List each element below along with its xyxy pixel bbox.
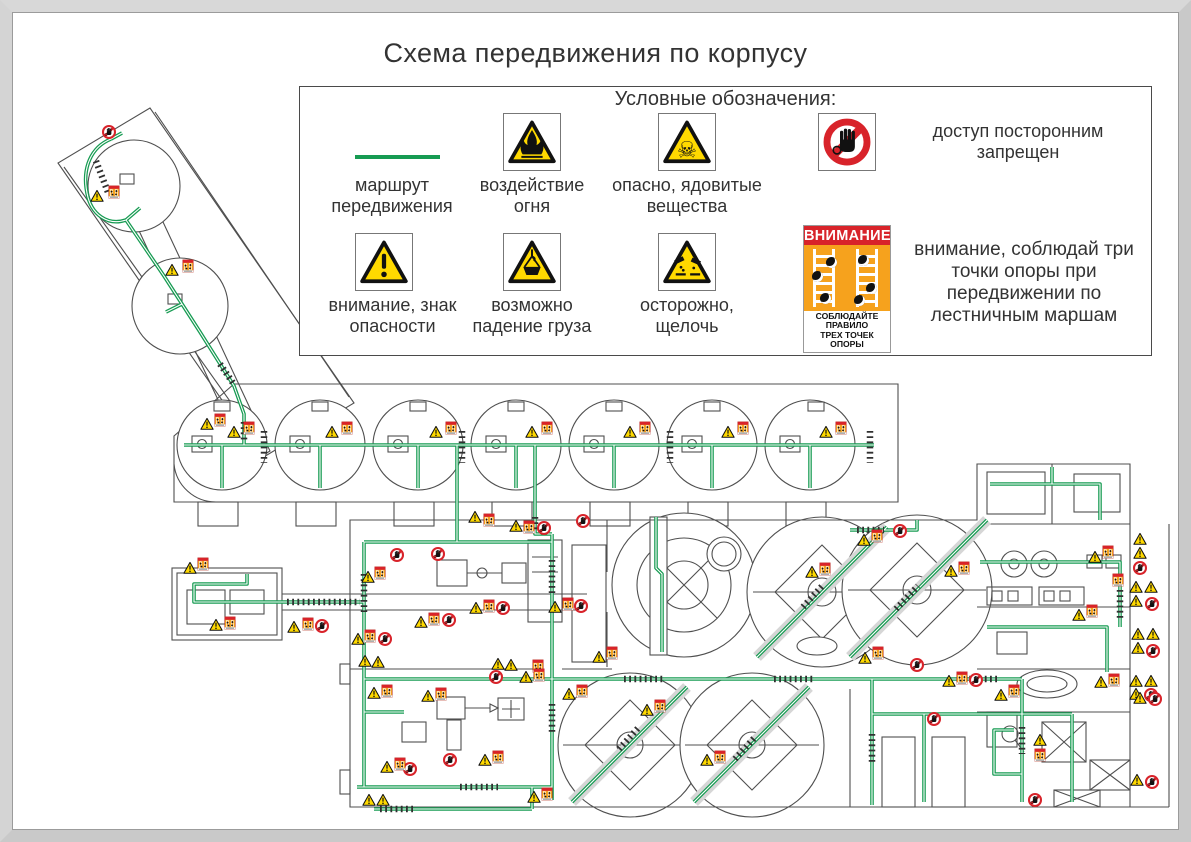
no-access-icon (391, 549, 403, 561)
three-points-notice-icon (303, 618, 313, 630)
no-access-icon (894, 525, 906, 537)
legend-item-load (503, 233, 561, 291)
three-points-notice-icon (484, 514, 494, 526)
no-access-icon (911, 659, 923, 671)
three-points-notice-icon (183, 260, 193, 272)
warning-triangle-icon (563, 688, 575, 699)
three-points-notice-icon (436, 688, 446, 700)
warning-triangle-icon (593, 651, 605, 662)
warning-triangle-icon (470, 602, 482, 613)
safety-scheme-poster: ☠ (0, 0, 1191, 842)
no-access-icon (103, 126, 115, 138)
three-points-notice-icon (524, 521, 534, 533)
route-line-sample (355, 155, 440, 159)
three-points-notice-icon (563, 598, 573, 610)
three-points-notice-icon (375, 567, 385, 579)
three-points-notice-icon (577, 685, 587, 697)
three-points-notice-icon (365, 630, 375, 642)
three-points-notice-icon (1103, 546, 1113, 558)
warning-triangle-icon (377, 794, 389, 805)
three-points-notice-icon (1087, 605, 1097, 617)
legend-box: Условные обозначения: маршрут передвижен… (299, 86, 1152, 356)
legend-label-toxic: опасно, ядовитые вещества (602, 175, 772, 217)
warning-triangle-icon (381, 761, 393, 772)
three-points-notice-icon (655, 700, 665, 712)
three-points-notice-icon (640, 422, 650, 434)
three-points-poster: ВНИМАНИЕ СОБЛЮДАЙТЕ ПРАВИЛО ТРЕХ ТОЧЕК О… (803, 225, 891, 353)
no-access-icon (443, 614, 455, 626)
warning-triangle-icon (1134, 547, 1146, 558)
three-points-notice-icon (542, 422, 552, 434)
legend-label-no-access: доступ посторонним запрещен (892, 121, 1144, 163)
legend-title: Условные обозначения: (300, 88, 1151, 111)
three-points-notice-icon (607, 647, 617, 659)
no-access-icon (444, 754, 456, 766)
legend-label-three-points: внимание, соблюдай три точки опоры при п… (898, 239, 1150, 327)
clarifier-tanks (558, 513, 992, 817)
three-points-notice-icon (395, 758, 405, 770)
warning-triangle-icon (520, 671, 532, 682)
warning-triangle-icon (1034, 734, 1046, 745)
warning-triangle-icon (1130, 595, 1142, 606)
no-access-icon (1147, 645, 1159, 657)
warning-triangle-icon (210, 619, 222, 630)
warning-triangle-icon (1132, 642, 1144, 653)
no-access-icon (497, 602, 509, 614)
legend-label-alkali: осторожно, щелочь (608, 295, 766, 337)
page-title: Схема передвижения по корпусу (12, 38, 1179, 69)
no-access-icon (1134, 562, 1146, 574)
legend-item-fire (503, 113, 561, 171)
three-points-notice-icon (872, 530, 882, 542)
no-access-icon (1146, 598, 1158, 610)
three-points-notice-icon (446, 422, 456, 434)
danger-warning-icon (359, 240, 409, 285)
poster-ladder-graphic (804, 245, 890, 311)
three-points-notice-icon (534, 669, 544, 681)
three-points-notice-icon (244, 422, 254, 434)
three-points-notice-icon (342, 422, 352, 434)
warning-triangle-icon (1145, 581, 1157, 592)
toxic-warning-icon (662, 120, 712, 165)
warning-triangle-icon (492, 658, 504, 669)
warning-triangle-icon (368, 687, 380, 698)
no-access-icon (538, 522, 550, 534)
legend-item-danger (355, 233, 413, 291)
warning-triangle-icon (1130, 581, 1142, 592)
three-points-notice-icon (1109, 674, 1119, 686)
no-access-icon (1149, 693, 1161, 705)
three-points-notice-icon (1009, 685, 1019, 697)
warning-triangle-icon (1130, 675, 1142, 686)
warning-triangle-icon (415, 616, 427, 627)
legend-item-toxic (658, 113, 716, 171)
three-points-notice-icon (484, 600, 494, 612)
no-access-icon (379, 633, 391, 645)
three-points-notice-icon (738, 422, 748, 434)
three-points-notice-icon (1113, 574, 1123, 586)
three-points-notice-icon (715, 751, 725, 763)
legend-label-route: маршрут передвижения (308, 175, 476, 217)
legend-label-load: возможно падение груза (458, 295, 606, 337)
three-points-notice-icon (1035, 749, 1045, 761)
no-access-icon (577, 515, 589, 527)
three-points-notice-icon (225, 617, 235, 629)
warning-triangle-icon (943, 675, 955, 686)
three-points-notice-icon (429, 613, 439, 625)
three-points-notice-icon (215, 414, 225, 426)
three-points-notice-icon (198, 558, 208, 570)
warning-triangle-icon (288, 621, 300, 632)
three-points-notice-icon (109, 186, 119, 198)
warning-triangle-icon (363, 794, 375, 805)
three-points-notice-icon (836, 422, 846, 434)
warning-triangle-icon (372, 656, 384, 667)
three-points-notice-icon (820, 563, 830, 575)
three-points-notice-icon (959, 562, 969, 574)
no-access-icon (404, 763, 416, 775)
warning-triangle-icon (1089, 551, 1101, 562)
warning-triangle-icon (479, 754, 491, 765)
warning-triangle-icon (359, 655, 371, 666)
warning-triangle-icon (469, 511, 481, 522)
falling-load-icon (507, 240, 557, 285)
three-points-notice-icon (542, 788, 552, 800)
three-points-notice-icon (873, 647, 883, 659)
poster-footer: СОБЛЮДАЙТЕ ПРАВИЛО ТРЕХ ТОЧЕК ОПОРЫ (804, 311, 890, 353)
no-access-icon (490, 671, 502, 683)
warning-triangle-icon (1073, 609, 1085, 620)
warning-triangle-icon (422, 690, 434, 701)
warning-triangle-icon (1147, 628, 1159, 639)
no-access-icon (1029, 794, 1041, 806)
alkali-warning-icon (662, 240, 712, 285)
fire-warning-icon (507, 120, 557, 165)
no-access-icon (1146, 776, 1158, 788)
three-points-notice-icon (493, 751, 503, 763)
warning-triangle-icon (1095, 676, 1107, 687)
warning-triangle-icon (1145, 675, 1157, 686)
legend-label-fire: воздействие огня (466, 175, 598, 217)
legend-item-route (355, 155, 440, 159)
warning-triangle-icon (1134, 533, 1146, 544)
no-access-icon (928, 713, 940, 725)
three-points-notice-icon (382, 685, 392, 697)
warning-triangle-icon (1132, 628, 1144, 639)
warning-triangle-icon (1131, 774, 1143, 785)
no-access-icon (822, 117, 872, 167)
legend-item-alkali (658, 233, 716, 291)
warning-triangle-icon (505, 659, 517, 670)
warning-triangle-icon (995, 689, 1007, 700)
no-access-icon (432, 548, 444, 560)
three-points-notice-icon (957, 672, 967, 684)
poster-header: ВНИМАНИЕ (804, 226, 890, 245)
warning-triangle-icon (528, 791, 540, 802)
no-access-icon (575, 600, 587, 612)
legend-item-no-access (818, 113, 876, 171)
no-access-icon (316, 620, 328, 632)
no-access-icon (970, 674, 982, 686)
